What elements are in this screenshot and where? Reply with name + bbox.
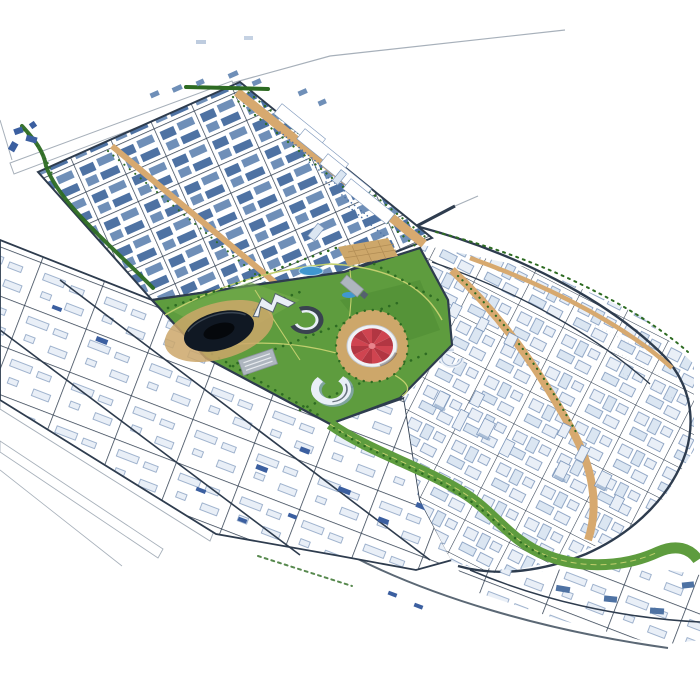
circus-tent-building	[336, 310, 408, 382]
pond-north	[299, 267, 323, 276]
northeast-exit-road-faint	[455, 196, 478, 206]
south-shed	[388, 591, 398, 598]
outline-road-left-stub	[0, 120, 12, 160]
north-edge-green-strip	[186, 87, 268, 89]
tent-roof	[347, 325, 397, 367]
city-masterplan-svg	[0, 0, 700, 700]
south-shed	[414, 603, 424, 610]
right-district-blocks	[404, 244, 694, 574]
right-highrise-district	[404, 226, 694, 574]
outline-road-topright	[232, 30, 565, 83]
masterplan-rendering	[0, 0, 700, 700]
row-houses-south	[258, 556, 352, 586]
